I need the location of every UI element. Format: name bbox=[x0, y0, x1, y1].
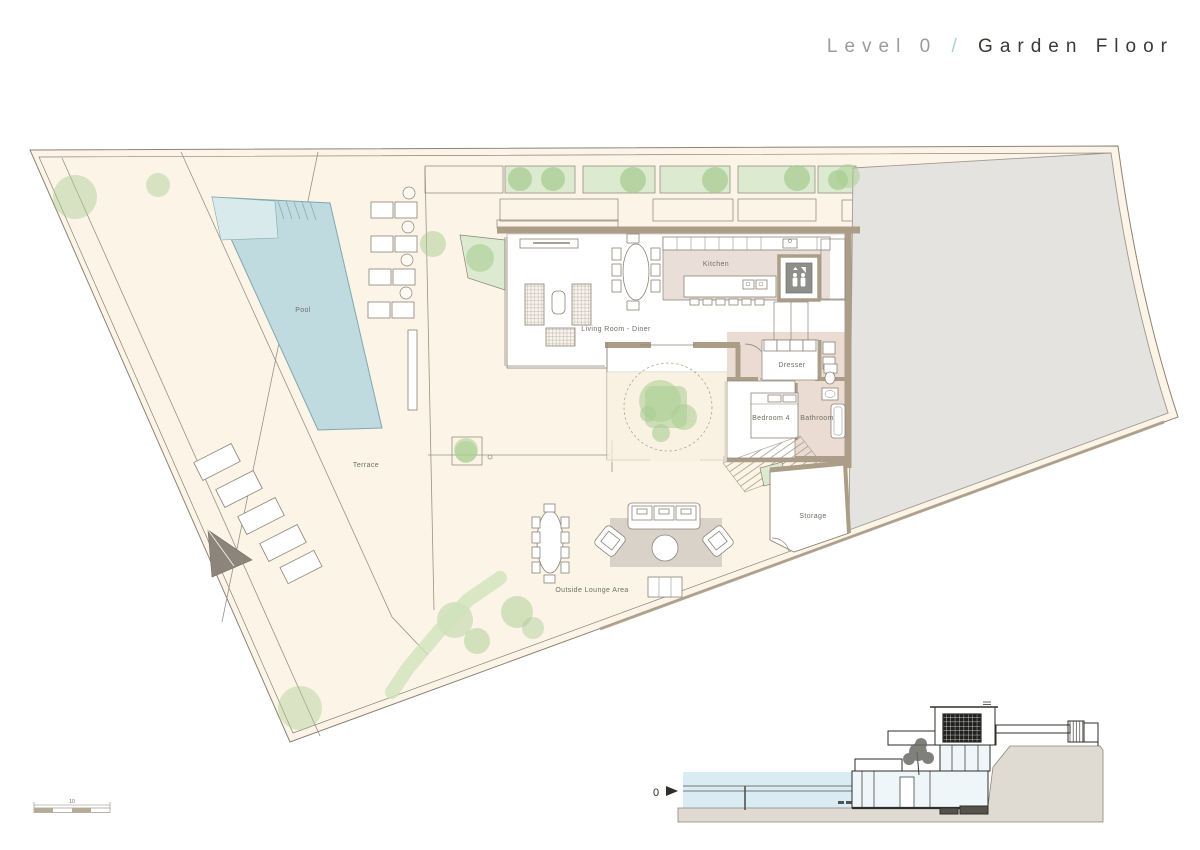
living-room-label: Living Room - Diner bbox=[581, 326, 651, 333]
scale-bar: 10 bbox=[34, 799, 110, 813]
outside-lounge-label: Outside Lounge Area bbox=[555, 587, 628, 594]
section-louver-grid bbox=[943, 714, 981, 742]
sofa-bottom bbox=[546, 328, 575, 346]
storage-label: Storage bbox=[799, 513, 826, 520]
sofa-right bbox=[572, 284, 591, 325]
bathroom-label: Bathroom bbox=[800, 415, 834, 422]
section-drawing: 0 bbox=[653, 702, 1103, 822]
kitchen-label: Kitchen bbox=[703, 261, 729, 268]
section-sky bbox=[683, 772, 860, 808]
pool-shallow-area bbox=[212, 197, 278, 240]
walkway-bench bbox=[408, 330, 417, 410]
sofa-left bbox=[525, 284, 544, 325]
section-roof-right bbox=[996, 721, 1098, 746]
section-level-marker: 0 bbox=[653, 786, 678, 799]
terrace-label: Terrace bbox=[353, 462, 379, 469]
level-marker-label: 0 bbox=[653, 787, 659, 799]
level-arrow-icon bbox=[666, 786, 678, 796]
plan-drawing: Pool bbox=[0, 0, 1200, 850]
courtyard bbox=[607, 363, 727, 462]
scale-bar-label: 10 bbox=[69, 799, 75, 805]
kitchen-counter bbox=[663, 237, 830, 250]
round-coffee-table bbox=[652, 535, 678, 561]
sink bbox=[822, 388, 838, 400]
side-table bbox=[648, 577, 682, 597]
lounge-sofa bbox=[628, 503, 700, 529]
dresser-label: Dresser bbox=[778, 362, 806, 369]
bedroom-label: Bedroom 4 bbox=[752, 415, 790, 422]
floor-plan-page: Level 0 / Garden Floor bbox=[0, 0, 1200, 850]
elevator bbox=[779, 256, 819, 300]
pool-label: Pool bbox=[295, 307, 311, 314]
wardrobe bbox=[764, 340, 816, 351]
coffee-table bbox=[552, 291, 565, 314]
